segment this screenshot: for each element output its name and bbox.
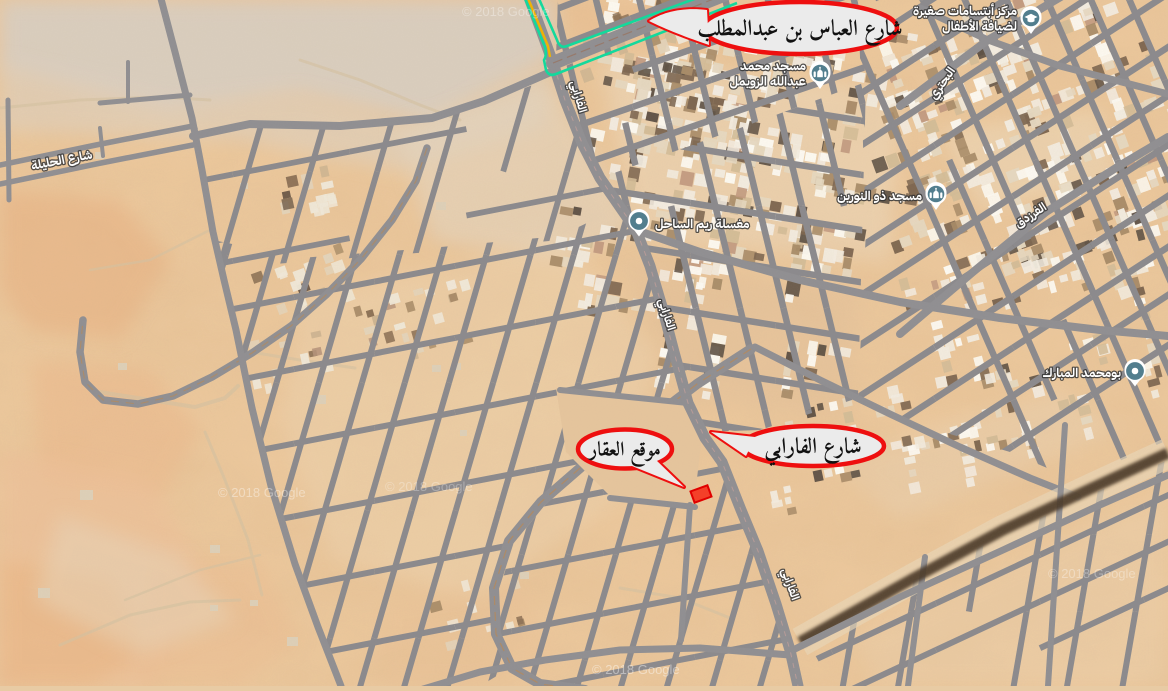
svg-text:© 2018 Google: © 2018 Google [462,4,550,19]
svg-text:© 2018 Google: © 2018 Google [218,485,306,500]
svg-text:© 2018 Google: © 2018 Google [385,479,473,494]
svg-text:© 2018 Google: © 2018 Google [592,662,680,677]
svg-text:© 2018 Google: © 2018 Google [1048,566,1136,581]
